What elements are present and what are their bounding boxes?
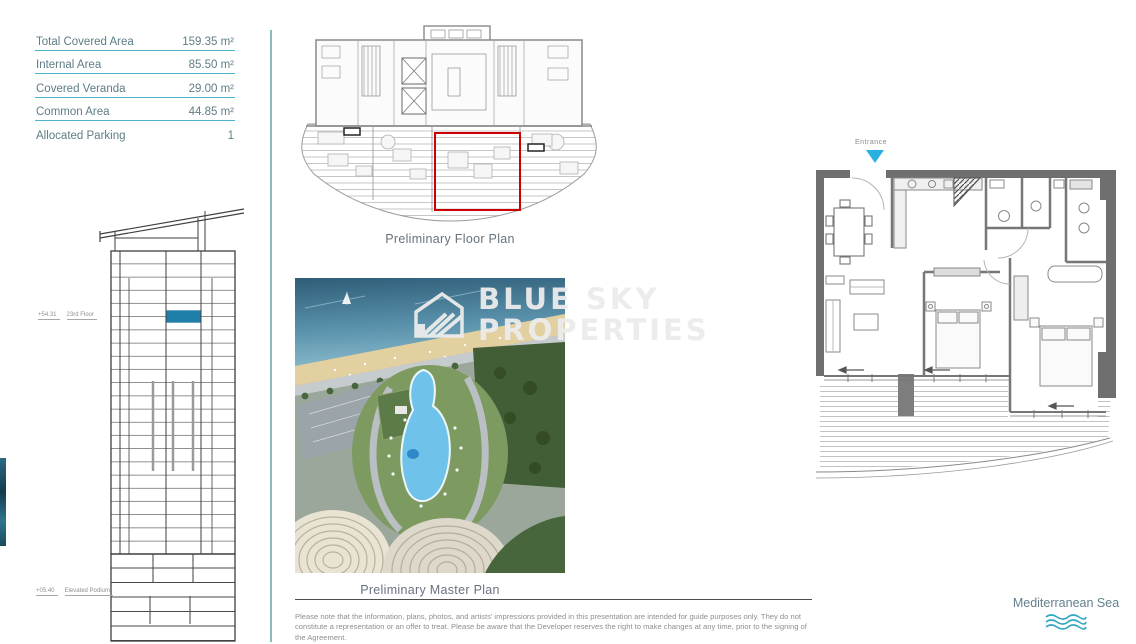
kitchen [894, 178, 982, 248]
mediterranean-sea-label: Mediterranean Sea [1008, 596, 1124, 631]
bedroom1 [926, 268, 991, 368]
highlighted-floor [167, 310, 201, 322]
entrance-label: Entrance [855, 139, 887, 146]
area-row-value: 1 [228, 130, 234, 142]
table-row: Internal Area 85.50 m² [35, 51, 235, 75]
table-row: Covered Veranda 29.00 m² [35, 74, 235, 98]
vertical-divider [270, 30, 272, 642]
living-room-furniture [826, 276, 884, 352]
area-row-label: Covered Veranda [36, 83, 126, 95]
area-row-value: 85.50 m² [189, 59, 234, 71]
area-summary-table: Total Covered Area 159.35 m² Internal Ar… [35, 27, 235, 144]
dining-set [826, 200, 872, 264]
elevation-podium-annotation: +05.40 Elevated Podium [36, 588, 113, 596]
sea-text: Mediterranean Sea [1013, 596, 1119, 610]
area-row-label: Allocated Parking [36, 130, 126, 142]
podium-level-value: +05.40 [36, 588, 58, 596]
area-row-label: Common Area [36, 106, 110, 118]
building-elevation-drawing [98, 203, 248, 643]
area-row-value: 159.35 m² [182, 36, 234, 48]
table-row: Total Covered Area 159.35 m² [35, 27, 235, 51]
area-row-label: Internal Area [36, 59, 101, 71]
master-plan-caption: Preliminary Master Plan [295, 583, 565, 597]
floor-level-value: +54.31 [38, 312, 60, 320]
floor-plan-caption: Preliminary Floor Plan [298, 232, 602, 246]
upper-floor-block [316, 26, 582, 126]
left-edge-image-strip [0, 458, 6, 546]
entrance-arrow-icon [866, 150, 884, 163]
presentation-page: Total Covered Area 159.35 m² Internal Ar… [0, 0, 1136, 644]
area-row-value: 44.85 m² [189, 106, 234, 118]
preliminary-master-plan-image [295, 278, 565, 573]
tower-body [111, 218, 235, 641]
apartment-floor-plan-image [814, 164, 1126, 494]
bathrooms [990, 180, 1102, 282]
area-row-value: 29.00 m² [189, 83, 234, 95]
table-row: Common Area 44.85 m² [35, 98, 235, 122]
waves-icon [1044, 613, 1088, 631]
tower-roof [100, 209, 244, 251]
table-row: Allocated Parking 1 [35, 121, 235, 144]
elevation-floor-annotation: +54.31 23rd Floor [38, 312, 97, 320]
floor-name: 23rd Floor [67, 312, 97, 320]
area-row-label: Total Covered Area [36, 36, 134, 48]
disclaimer-divider [295, 599, 812, 600]
preliminary-floor-plan-image [298, 24, 602, 224]
bedroom2 [1014, 276, 1103, 386]
disclaimer-text: Please note that the information, plans,… [295, 612, 812, 644]
podium-name: Elevated Podium [65, 588, 113, 596]
